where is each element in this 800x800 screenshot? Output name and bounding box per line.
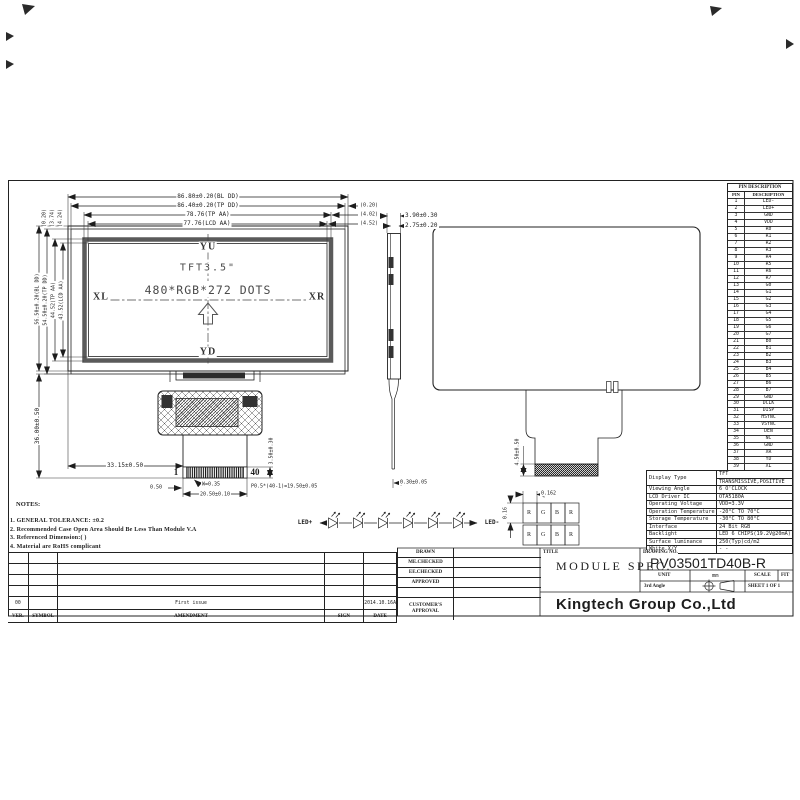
spec-table: Display TypeTFTTRANSMISSIVE,POSITIVEView… [646, 470, 793, 554]
spec-row: Operation Temperature-20°C TO 70°C [647, 508, 793, 516]
pixel-cell-g1: G [541, 510, 545, 516]
revision-cell [325, 597, 365, 609]
screen-label-xl: XL [92, 292, 110, 303]
spec-value: TFT [717, 471, 793, 479]
pin-number: 28 [728, 388, 745, 394]
spec-label: Display Type [647, 471, 717, 486]
pin-table-row: 26B5 [728, 374, 792, 381]
spec-label: Surface luminance [647, 538, 717, 546]
pin-description: G5 [745, 318, 792, 324]
pin-table-row: 18G5 [728, 318, 792, 325]
pin-description: XR [745, 450, 792, 456]
revision-cell [8, 564, 29, 574]
approved-value [454, 578, 541, 587]
pin-number: 32 [728, 415, 745, 421]
dim-bl-height: 56.50±0.20(BL DD) [36, 272, 41, 325]
scale-value: FIT [781, 573, 789, 578]
pin-description: G4 [745, 311, 792, 317]
dim-pixel-width: 0.162 [540, 492, 557, 497]
pin-number: 1 [728, 199, 745, 205]
revision-cell [8, 553, 29, 563]
spec-value: 6 O'CLOCK [717, 486, 793, 494]
pin-number: 35 [728, 436, 745, 442]
pin-number: 24 [728, 360, 745, 366]
dim-tp-height: 54.50±0.20(TP DD) [44, 273, 49, 326]
pin-description: GND [745, 443, 792, 449]
pin-number: 27 [728, 381, 745, 387]
revision-cell: AMENDMENT [58, 610, 324, 622]
spec-row: Display TypeTFT [647, 471, 793, 479]
pin-table-row: 5R0 [728, 227, 792, 234]
revision-table: 00First issue2014.10.16AVER.SYMBOLAMENDM… [8, 552, 397, 623]
dim-fpc-thickness: 0.30±0.05 [399, 481, 428, 486]
spec-sheet-page: 86.80±0.20(BL DD) 86.40±0.20(TP DD) 78.7… [0, 0, 800, 800]
pin-description: DEN [745, 429, 792, 435]
side-view-outline [388, 234, 401, 470]
revision-cell: 2014.10.16A [364, 597, 397, 609]
pin-table-row: 6R1 [728, 234, 792, 241]
pin-table-row: 22B1 [728, 346, 792, 353]
dim-lcd-aa-width: 77.76(LCD AA) [183, 221, 232, 227]
dim-left-offset-1: (0.20) [43, 208, 48, 228]
revision-cell [364, 586, 397, 596]
pin-number: 6 [728, 234, 745, 240]
dim-connector-height: 3.50±0.30 [270, 436, 275, 465]
spec-value: OTA5180A [717, 493, 793, 501]
unit-label: UNIT [658, 573, 671, 578]
pin-number: 2 [728, 206, 745, 212]
dim-connector-offset: 33.15±0.50 [106, 463, 144, 469]
pin-table-rows: 1LED-2LED+3GND4VDD5R06R17R28R39R410R511R… [728, 199, 792, 477]
spec-row: Surface luminance250(Typ)cd/m2 [647, 538, 793, 546]
pin-description: GND [745, 395, 792, 401]
dim-flex-height: 36.00±0.50 [35, 407, 41, 445]
screen-label-size: TFT3.5" [179, 263, 237, 274]
pin-description: R4 [745, 255, 792, 261]
approval-spacer-value [454, 588, 541, 597]
drawing-linework [0, 0, 800, 800]
screen-label-xr: XR [308, 292, 326, 303]
pin-description: G0 [745, 283, 792, 289]
pin-description: B7 [745, 388, 792, 394]
pixel-cell-g2: G [541, 532, 545, 538]
screen-label-yd: YD [199, 347, 217, 358]
pin-description: B3 [745, 360, 792, 366]
pin-description: B4 [745, 367, 792, 373]
pixel-cell-b1: B [555, 510, 559, 516]
pin-number: 26 [728, 374, 745, 380]
drawing-number: PV03501TD40B-R [650, 555, 766, 571]
pin-description: R2 [745, 241, 792, 247]
revision-cell [29, 575, 59, 585]
pin-description: DISP [745, 408, 792, 414]
pin-table-row: 13G0 [728, 283, 792, 290]
pin-table-row: 28B7 [728, 388, 792, 395]
spec-value: - - [717, 546, 793, 554]
unit-value: mm [712, 573, 719, 579]
pin-table-title: PIN DESCRIPTION [728, 184, 792, 192]
pin-number: 31 [728, 408, 745, 414]
spec-row: Storage Temperature-30°C TO 80°C [647, 516, 793, 524]
revision-cell [325, 586, 365, 596]
spec-row: Viewing Angle6 O'CLOCK [647, 486, 793, 494]
revision-cell [29, 586, 59, 596]
dim-right-offset-3: (4.52) [359, 222, 379, 227]
pin-description: R1 [745, 234, 792, 240]
dim-rear-connector: 4.50±0.50 [516, 437, 521, 466]
connector-pin-1: 1 [173, 467, 180, 477]
pin-description: G1 [745, 290, 792, 296]
dim-tp-width: 86.40±0.20(TP DD) [176, 203, 239, 209]
pin-table-row: 8R3 [728, 248, 792, 255]
spec-value: 250(Typ)cd/m2 [717, 538, 793, 546]
dim-right-offset-1: (0.20) [359, 204, 379, 209]
pin-number: 33 [728, 422, 745, 428]
approval-spacer [398, 588, 454, 597]
dim-bl-width: 86.80±0.20(BL DD) [176, 194, 239, 200]
note-item: 3. Referenced Dimension:( ) [10, 535, 87, 541]
company-name: Kingtech Group Co.,Ltd [556, 596, 736, 613]
revision-cell: DATE [364, 610, 397, 622]
spec-value: TRANSMISSIVE,POSITIVE [717, 478, 793, 486]
pin-table-row: 12R7 [728, 276, 792, 283]
dim-left-offset-2: (3.74) [51, 208, 56, 228]
pin-number: 7 [728, 241, 745, 247]
pin-description: R5 [745, 262, 792, 268]
pin-number: 34 [728, 429, 745, 435]
revision-header-row: VER.SYMBOLAMENDMENTSIGNDATE [8, 610, 397, 623]
dim-connector-width: 20.50±0.10 [199, 493, 231, 498]
pin-number: 38 [728, 457, 745, 463]
revision-row [8, 586, 397, 597]
revision-cell [325, 553, 365, 563]
pin-description: R6 [745, 269, 792, 275]
pin-number: 14 [728, 290, 745, 296]
revision-cell: First issue [58, 597, 324, 609]
third-angle-symbol-icon [703, 580, 735, 593]
revision-cell [58, 564, 324, 574]
pin-table-row: 19G6 [728, 325, 792, 332]
scale-label: SCALE [754, 573, 771, 578]
pin-table-row: 17G4 [728, 311, 792, 318]
dim-left-offset-3: (4.24) [59, 208, 64, 228]
pin-table-row: 15G2 [728, 297, 792, 304]
revision-cell [29, 564, 59, 574]
pin-number: 30 [728, 401, 745, 407]
pin-description: HSYNC [745, 415, 792, 421]
pin-number: 15 [728, 297, 745, 303]
dim-pin-width: W=0.35 [201, 483, 221, 488]
pin-table-header: PIN DESCRIPTION [728, 192, 792, 199]
revision-cell: SYMBOL [29, 610, 59, 622]
pin-description: NC [745, 436, 792, 442]
pin-description: VSYNC [745, 422, 792, 428]
pixel-cell-b2: B [555, 532, 559, 538]
revision-cell [58, 586, 324, 596]
pin-number: 21 [728, 339, 745, 345]
revision-cell [58, 553, 324, 563]
pin-number: 12 [728, 276, 745, 282]
pin-description: B0 [745, 339, 792, 345]
pin-table-row: 1LED- [728, 199, 792, 206]
pin-number: 8 [728, 248, 745, 254]
pixel-cell-r2: R [527, 532, 531, 538]
revision-row [8, 553, 397, 564]
projection-angle-label: 3rd Angle [644, 584, 665, 589]
pin-table-row: 25B4 [728, 367, 792, 374]
description-col-header: DESCRIPTION [745, 192, 792, 198]
customer-approval-value [454, 598, 541, 620]
approved-label: APPROVED [398, 578, 454, 587]
pin-description: DCLK [745, 401, 792, 407]
spec-row: BacklightLED 6 CHIPS(19.2V@20mA) [647, 531, 793, 539]
led-circuit-diodes [327, 512, 465, 531]
spec-value: VDD=3.3V [717, 501, 793, 509]
spec-value: 24 Bit RGB [717, 523, 793, 531]
pin-number: 13 [728, 283, 745, 289]
title-label: TITLE [543, 550, 558, 555]
revision-cell: SIGN [325, 610, 365, 622]
sheet-label: SHEET 1 OF 1 [748, 584, 780, 589]
me-checked-value [454, 558, 541, 567]
pin-table-row: 4VDD [728, 220, 792, 227]
dim-tp-aa-height: 44.52(TP AA) [52, 281, 57, 319]
pin-description: VDD [745, 220, 792, 226]
pin-number: 22 [728, 346, 745, 352]
pin-number: 19 [728, 325, 745, 331]
pin-number: 37 [728, 450, 745, 456]
spec-row: Operating VoltageVDD=3.3V [647, 501, 793, 509]
pixel-cell-r1b: R [569, 510, 573, 516]
screen-label-yu: YU [199, 242, 217, 253]
pin-number: 10 [728, 262, 745, 268]
pin-number: 3 [728, 213, 745, 219]
pin-number: 25 [728, 367, 745, 373]
pin-description: GND [745, 213, 792, 219]
pin-number: 23 [728, 353, 745, 359]
pin-number: 20 [728, 332, 745, 338]
rear-view-outline [433, 227, 700, 476]
pin-description-table: PIN DESCRIPTION PIN DESCRIPTION 1LED-2LE… [727, 183, 793, 478]
pin-table-row: 20G7 [728, 332, 792, 339]
pin-description: B5 [745, 374, 792, 380]
ee-checked-label: EE.CHECKED [398, 568, 454, 577]
led-minus-label: LED- [484, 520, 500, 526]
dim-module-thickness: 3.90±0.30 [404, 213, 439, 219]
pin-table-row: 23B2 [728, 353, 792, 360]
revision-cell [325, 564, 365, 574]
spec-label: Operation Temperature [647, 508, 717, 516]
note-item: 2. Recommended Case Open Area Should Be … [10, 527, 197, 533]
dim-lcd-aa-height: 43.52(LCD AA) [60, 279, 65, 320]
drawn-label: DRAWN [398, 548, 454, 557]
pin-table-row: 3GND [728, 213, 792, 220]
spec-value: LED 6 CHIPS(19.2V@20mA) [717, 531, 793, 539]
pin-number: 29 [728, 395, 745, 401]
front-view-fpc [158, 391, 262, 478]
pin-number: 36 [728, 443, 745, 449]
screen-label-resolution: 480*RGB*272 DOTS [144, 283, 273, 297]
revision-cell [8, 575, 29, 585]
spec-label: Backlight [647, 531, 717, 539]
revision-cell [364, 564, 397, 574]
note-item: 1. GENERAL TOLERANCE: ±0.2 [10, 518, 104, 524]
revision-row [8, 575, 397, 586]
spec-row: Interface24 Bit RGB [647, 523, 793, 531]
revision-row: 00First issue2014.10.16A [8, 597, 397, 610]
pixel-cell-r1: R [527, 510, 531, 516]
dim-right-offset-2: (4.02) [359, 213, 379, 218]
pixel-cell-r2b: R [569, 532, 573, 538]
pin-number: 16 [728, 304, 745, 310]
ee-checked-value [454, 568, 541, 577]
pin-description: G2 [745, 297, 792, 303]
led-plus-label: LED+ [297, 520, 313, 526]
pin-number: 4 [728, 220, 745, 226]
pin-number: 17 [728, 311, 745, 317]
revision-cell [29, 597, 59, 609]
pin-description: LED+ [745, 206, 792, 212]
pin-description: B6 [745, 381, 792, 387]
spec-value: -20°C TO 70°C [717, 508, 793, 516]
drawn-value [454, 548, 541, 557]
dim-lcd-thickness: 2.75±0.20 [404, 223, 439, 229]
me-checked-label: ME.CHECKED [398, 558, 454, 567]
spec-label: Interface [647, 523, 717, 531]
spec-label: Operating Voltage [647, 501, 717, 509]
page-corner-marks [6, 4, 794, 69]
spec-label: Viewing Angle [647, 486, 717, 494]
note-item: 4. Material are RoHS complicant [10, 544, 101, 550]
pin-description: LED- [745, 199, 792, 205]
spec-row: LCD Driver ICOTA5180A [647, 493, 793, 501]
pin-description: B2 [745, 353, 792, 359]
pin-description: R3 [745, 248, 792, 254]
pin-table-row: 24B3 [728, 360, 792, 367]
connector-pin-40: 40 [250, 467, 261, 477]
pin-description: R0 [745, 227, 792, 233]
pin-description: R7 [745, 276, 792, 282]
revision-cell [58, 575, 324, 585]
pin-number: 11 [728, 269, 745, 275]
pin-description: G7 [745, 332, 792, 338]
pin-description: G3 [745, 304, 792, 310]
dim-pixel-height: 0.16 [504, 506, 509, 520]
dim-pin-pitch: P0.5*(40-1)=19.50±0.05 [250, 485, 318, 490]
spec-label: Storage Temperature [647, 516, 717, 524]
dim-pin-margin: 0.50 [149, 486, 163, 491]
approval-block: DRAWN ME.CHECKED EE.CHECKED APPROVED CUS… [397, 548, 541, 616]
pin-table-row: 27B6 [728, 381, 792, 388]
revision-cell [325, 575, 365, 585]
customer-approval-label: CUSTOMER'S APPROVAL [398, 598, 454, 620]
pin-number: 9 [728, 255, 745, 261]
pin-number: 18 [728, 318, 745, 324]
revision-cell [29, 553, 59, 563]
revision-row [8, 564, 397, 575]
revision-cell [364, 575, 397, 585]
dim-tp-aa-width: 78.76(TP AA) [185, 212, 230, 218]
spec-label: LCD Driver IC [647, 493, 717, 501]
revision-cell: 00 [8, 597, 29, 609]
revision-cell [8, 586, 29, 596]
pin-table-row: 16G3 [728, 304, 792, 311]
pin-table-row: 7R2 [728, 241, 792, 248]
pin-col-header: PIN [728, 192, 745, 198]
pin-table-row: 14G1 [728, 290, 792, 297]
pin-description: G6 [745, 325, 792, 331]
notes-title: NOTES: [16, 501, 40, 508]
revision-cell: VER. [8, 610, 29, 622]
pin-table-row: 11R6 [728, 269, 792, 276]
pin-table-row: 2LED+ [728, 206, 792, 213]
pin-table-row: 21B0 [728, 339, 792, 346]
pin-description: B1 [745, 346, 792, 352]
revision-cell [364, 553, 397, 563]
pin-number: 5 [728, 227, 745, 233]
pin-description: YD [745, 457, 792, 463]
spec-value: -30°C TO 80°C [717, 516, 793, 524]
